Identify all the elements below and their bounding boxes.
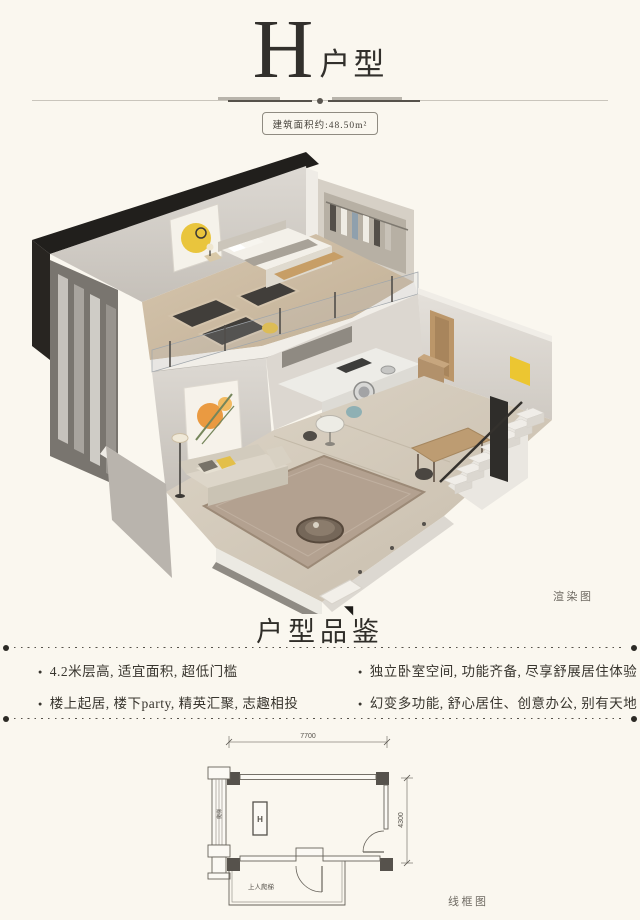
bullet-icon: ● [38,668,43,676]
render-3d-figure [20,144,580,614]
wireframe-floorplan: 7700 4300 [195,722,435,917]
brochure-page: H 户型 建筑面积约:48.50m² [0,0,640,920]
bullet-icon: ● [358,668,363,676]
plan-annotation: 上人爬梯 [248,882,275,891]
divider-center-dot-icon [317,98,323,104]
selling-point: ●独立卧室空间, 功能齐备, 尽享舒展居住体验 [358,660,637,680]
dotted-divider-top [0,644,640,651]
unit-marker-label: H [257,815,263,824]
heading-accent-icon: ◥ [344,603,353,618]
bullet-icon: ● [38,700,43,708]
wireframe-figure-label: 线框图 [448,893,489,909]
dim-right-label: 4300 [398,812,405,828]
selling-point: ●楼上起居, 楼下party, 精英汇聚, 志趣相投 [38,692,298,712]
wall-art-yellow-circle [181,223,211,253]
selling-point: ●幻变多功能, 舒心居住、创意办公, 别有天地 [358,692,637,712]
dim-top-label: 7700 [300,733,316,740]
plan-walls [208,767,393,905]
selling-point: ●4.2米层高, 适宜面积, 超低门槛 [38,660,238,680]
ladder-side-label: 爬梯 [216,809,223,819]
render-figure-label: 渲染图 [553,588,594,604]
page-title: H 户型 [0,10,640,90]
area-badge: 建筑面积约:48.50m² [262,112,379,135]
unit-type-label: 户型 [319,39,387,84]
unit-letter: H [253,10,314,90]
dining-table [316,416,344,433]
bullet-icon: ● [358,700,363,708]
dotted-divider-bottom [0,715,640,722]
title-divider [32,97,608,105]
